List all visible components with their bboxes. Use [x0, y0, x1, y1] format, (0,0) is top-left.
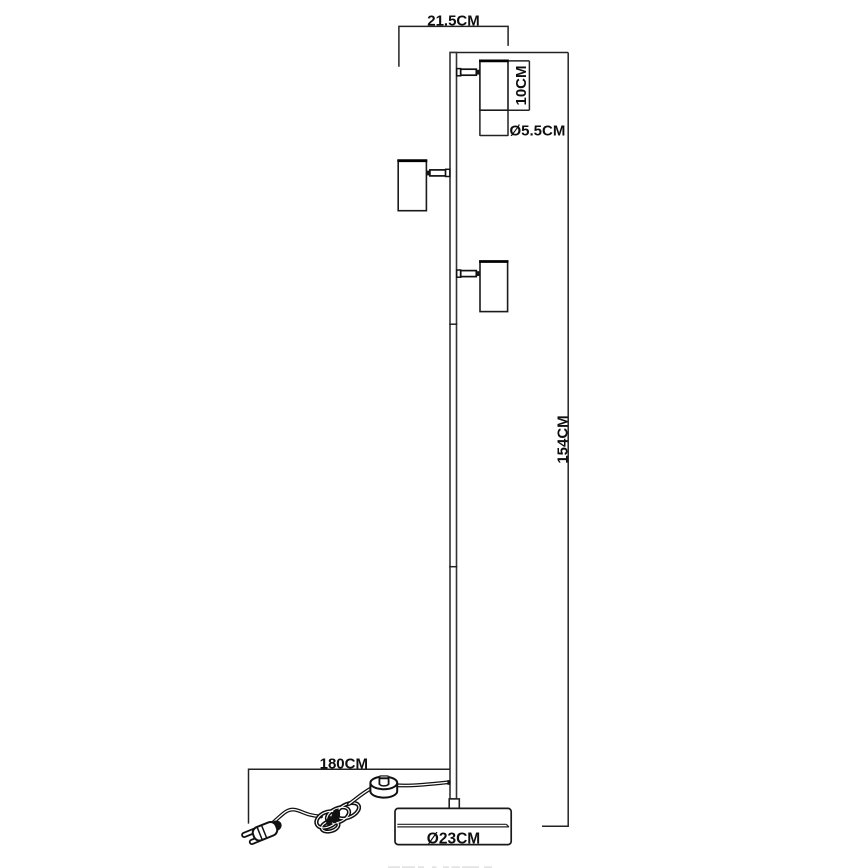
svg-text:21.5CM: 21.5CM: [427, 13, 480, 30]
svg-text:Ø5.5CM: Ø5.5CM: [510, 122, 566, 139]
svg-text:154CM: 154CM: [555, 415, 572, 463]
svg-text:Ø23CM: Ø23CM: [427, 830, 480, 847]
svg-text:10CM: 10CM: [513, 65, 530, 105]
svg-text:180CM: 180CM: [320, 755, 368, 772]
